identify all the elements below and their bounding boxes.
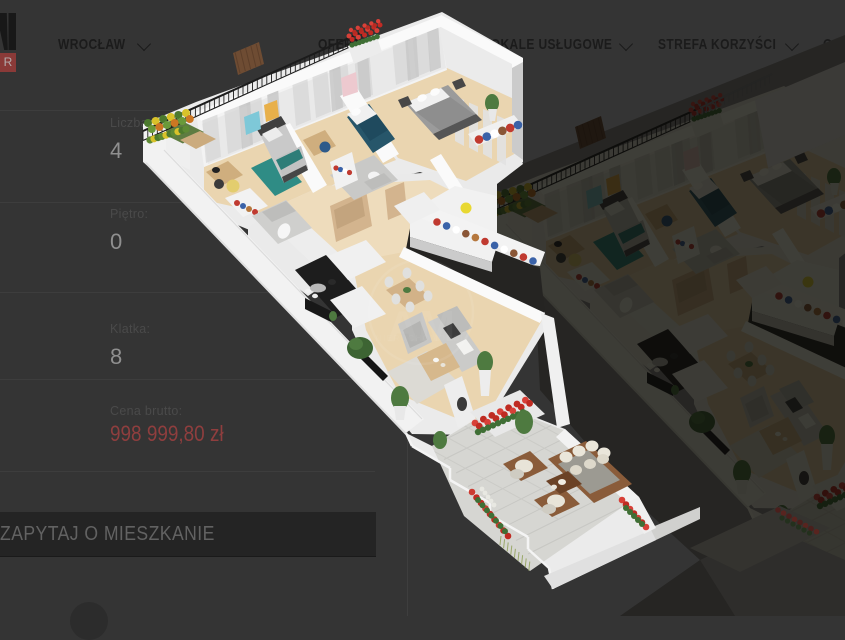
- svg-text:NIERUCHOMOŚCI: NIERUCHOMOŚCI: [376, 334, 464, 343]
- svg-text:AM: AM: [387, 302, 455, 351]
